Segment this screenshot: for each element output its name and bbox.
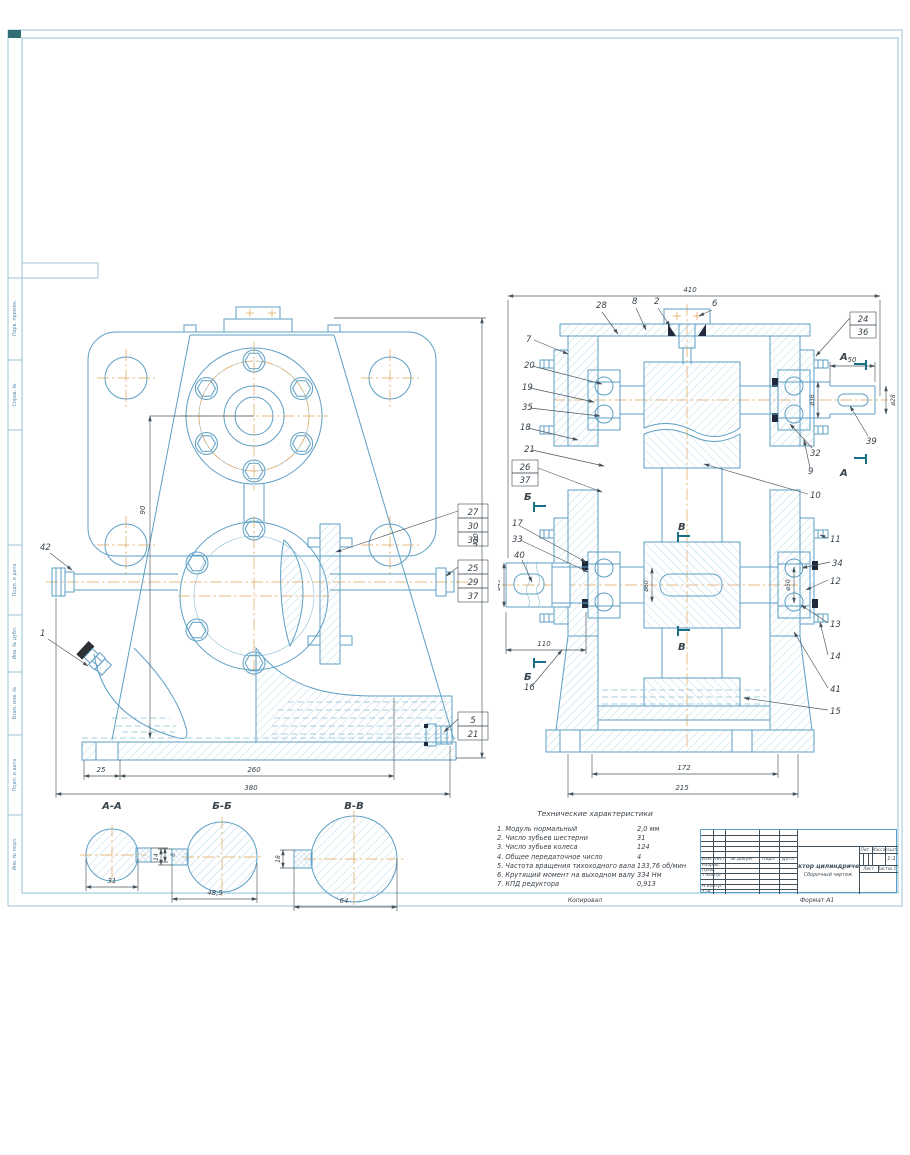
edge-label: Подп. и дата (12, 564, 18, 597)
callout-27: 27 (468, 508, 479, 518)
front-sump (82, 648, 456, 760)
edge-label: Взам. инв. № (12, 687, 18, 720)
callout-33: 33 (512, 535, 523, 545)
callout-5: 5 (470, 716, 475, 726)
edge-label: Справ. № (12, 383, 18, 406)
spec-value: 2,0 мм (637, 825, 693, 834)
callout-13: 13 (830, 620, 841, 630)
upper-shaft-assembly (588, 362, 875, 437)
callout-14: 14 (830, 652, 841, 662)
spec-label: 6. Крутящий момент на выходном валу (497, 871, 637, 880)
format-label: Формат А1 (800, 897, 834, 904)
tb-doc-subtitle: Сборочный чертеж (804, 873, 853, 878)
tb-row-utv: Утв. (701, 889, 725, 894)
tb-doc-name: Редуктор цилиндрический Сборочный чертеж (797, 846, 859, 894)
callout-41: 41 (830, 685, 841, 695)
mark-A-top: А (839, 352, 848, 363)
spec-item: 4. Общее передаточное число4 (497, 853, 693, 862)
dim-50: 50 (848, 356, 857, 364)
callout-32: 32 (810, 449, 821, 459)
tb-head-data: Дата (779, 857, 797, 864)
callout-30: 30 (468, 522, 479, 532)
spec-item: 2. Число зубьев шестерни31 (497, 834, 693, 843)
dim-d28: ø28 (890, 394, 897, 406)
dim-d50: ø50 (785, 579, 792, 591)
callout-1: 1 (40, 629, 45, 639)
dim-d60: ø60 (643, 580, 650, 592)
dim-key-18: 18 (275, 855, 282, 863)
section-VV-title: В-В (344, 801, 363, 812)
edge-label: Подп. и дата (12, 759, 18, 792)
section-AA: А-А 8 31 (80, 801, 177, 891)
dim-25: 25 (97, 766, 106, 774)
spec-label: 3. Число зубьев колеса (497, 843, 637, 852)
dim-172: 172 (677, 764, 691, 772)
edge-label: Инв. № дубл. (12, 627, 18, 660)
detail-sections: А-А 8 31 Б-Б 14 48,5 В-В 18 64 (72, 797, 417, 915)
copied-label: Копировал (568, 897, 602, 904)
spec-label: 1. Модуль нормальный (497, 825, 637, 834)
callout-37: 37 (520, 476, 531, 486)
spec-value: 4 (637, 853, 693, 862)
mark-B-bottom: Б (524, 672, 532, 683)
spec-value: 133,76 об/мин (637, 862, 693, 871)
callout-2: 2 (654, 297, 659, 307)
callout-17: 17 (512, 519, 523, 529)
tb-mass-label: Масса (872, 846, 885, 853)
edge-strip: Перв. примен. Справ. № Подп. и дата Инв.… (8, 278, 22, 871)
spec-label: 7. КПД редуктора (497, 880, 637, 889)
section-BB-title: Б-Б (212, 801, 232, 812)
callout-34: 34 (832, 559, 843, 569)
callout-7: 7 (526, 335, 532, 345)
callout-18: 18 (520, 423, 531, 433)
dim-215: 215 (675, 784, 689, 792)
section-AA-title: А-А (101, 801, 122, 812)
spec-label: 4. Общее передаточное число (497, 853, 637, 862)
spec-value: 124 (637, 843, 693, 852)
callout-24: 24 (858, 315, 869, 325)
callout-38: 38 (468, 536, 479, 546)
callout-21b: 21 (468, 730, 479, 740)
callout-11: 11 (830, 535, 841, 545)
callout-29: 29 (468, 578, 479, 588)
mark-V-bottom: В (678, 642, 686, 653)
callout-6: 6 (712, 299, 718, 309)
section-BB: Б-Б 14 48,5 (153, 801, 262, 903)
dim-260: 260 (247, 766, 261, 774)
mark-V-top: В (678, 522, 686, 533)
tb-scale-value: 1:1 (885, 853, 898, 866)
dim-380: 380 (244, 784, 258, 792)
dim-d45: ø45 (498, 579, 502, 591)
callout-37: 37 (468, 592, 479, 602)
spec-item: 3. Число зубьев колеса124 (497, 843, 693, 852)
callout-25: 25 (468, 564, 479, 574)
tech-specs-title: Технические характеристики (497, 809, 693, 818)
section-VV: В-В 18 64 (275, 801, 404, 911)
tech-specs: Технические характеристики 1. Модуль нор… (497, 809, 693, 889)
callout-42: 42 (40, 543, 51, 553)
callout-36: 36 (858, 328, 869, 338)
dim-64: 64 (340, 897, 349, 905)
spec-value: 0,913 (637, 880, 693, 889)
dim-110: 110 (537, 640, 551, 648)
spec-label: 5. Частота вращения тихоходного вала (497, 862, 637, 871)
mark-B-top: Б (524, 492, 532, 503)
edge-label: Инв. № подл. (12, 837, 18, 870)
callout-16: 16 (524, 683, 535, 693)
callout-8: 8 (632, 297, 638, 307)
dim-410: 410 (683, 286, 697, 294)
spec-label: 2. Число зубьев шестерни (497, 834, 637, 843)
section-view: 410 50 ø36 ø28 ø45 110 ø60 ø50 172 215 А… (498, 278, 902, 808)
tb-lit-label: Лит. (859, 846, 872, 853)
title-block: Изм. Лист № докум. Подп. Дата Разраб. Пр… (700, 829, 897, 893)
tb-doc-title: Редуктор цилиндрический (797, 863, 859, 870)
spec-value: 31 (637, 834, 693, 843)
callout-9: 9 (808, 467, 813, 477)
dim-31: 31 (108, 877, 117, 885)
edge-label: Перв. примен. (12, 300, 18, 336)
dim-48-5: 48,5 (207, 889, 223, 897)
front-view: 25 260 380 410 90 42 1 27 30 38 25 29 37 (38, 298, 498, 810)
tb-head-ndoc: № докум. (725, 857, 759, 864)
spec-item: 7. КПД редуктора0,913 (497, 880, 693, 889)
tb-head-podp: Подп. (759, 857, 779, 864)
callout-40: 40 (514, 551, 525, 561)
callout-28: 28 (596, 301, 607, 311)
callout-39: 39 (866, 437, 877, 447)
tb-row-tkontr: Т.контр. (701, 873, 725, 878)
dim-key-14: 14 (153, 853, 160, 861)
spec-item: 5. Частота вращения тихоходного вала133,… (497, 862, 693, 871)
spec-value: 334 Нм (637, 871, 693, 880)
mark-A-bottom: А (839, 468, 848, 479)
spec-item: 1. Модуль нормальный2,0 мм (497, 825, 693, 834)
callout-26: 26 (520, 463, 531, 473)
sheet-corner-mark (8, 30, 21, 38)
callout-12: 12 (830, 577, 841, 587)
spec-item: 6. Крутящий момент на выходном валу334 Н… (497, 871, 693, 880)
callout-10: 10 (810, 491, 821, 501)
front-gear-boss (178, 484, 352, 676)
top-left-stamp-box (22, 263, 98, 278)
dim-90: 90 (139, 505, 147, 514)
dim-d36: ø36 (809, 394, 816, 406)
gear-wheel (644, 429, 740, 706)
callout-15: 15 (830, 707, 841, 717)
drawing-sheet: Перв. примен. Справ. № Подп. и дата Инв.… (0, 0, 910, 1155)
